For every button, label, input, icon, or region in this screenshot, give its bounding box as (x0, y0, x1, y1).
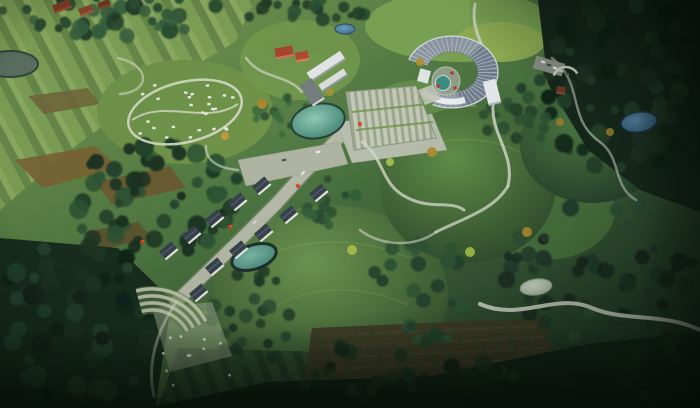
aerial-render-viewport (0, 0, 700, 408)
aerial-site-plan (0, 0, 700, 408)
vignette-right (636, 0, 700, 408)
vignette-bottom (0, 328, 700, 408)
